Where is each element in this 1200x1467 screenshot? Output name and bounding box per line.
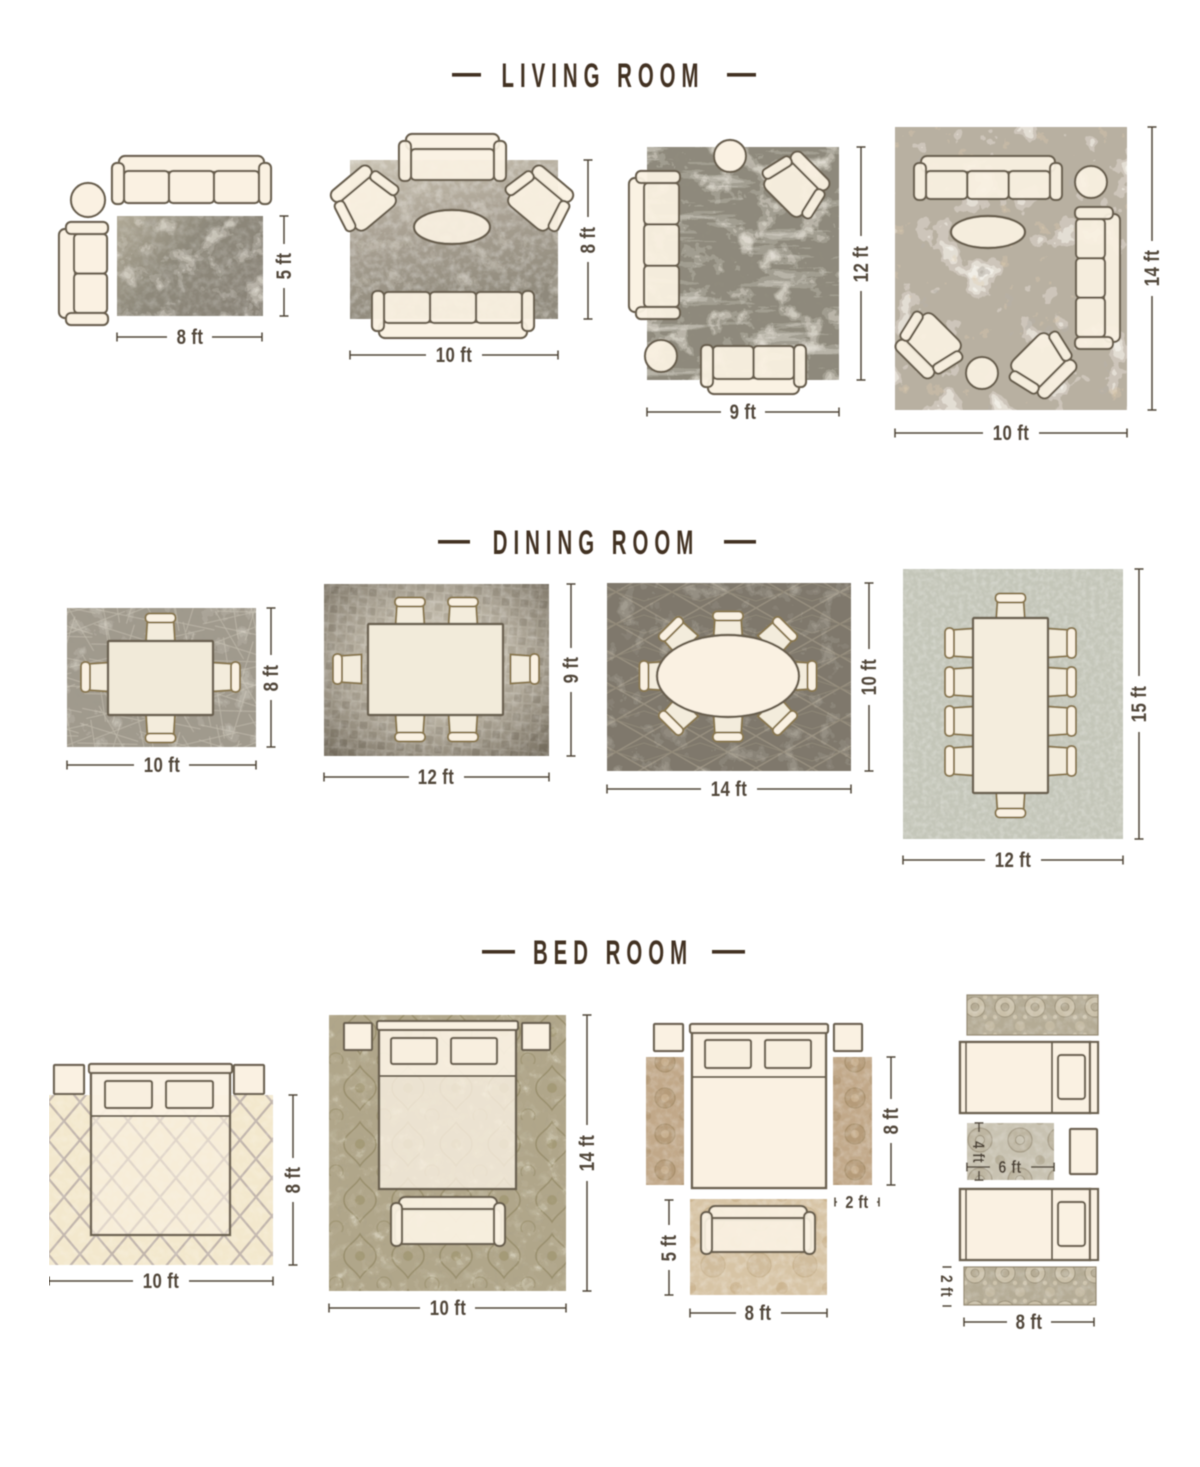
svg-text:12 ft: 12 ft [850, 246, 873, 283]
svg-text:6 ft: 6 ft [998, 1158, 1021, 1178]
svg-text:12 ft: 12 ft [418, 766, 455, 789]
svg-text:8 ft: 8 ft [260, 664, 283, 691]
svg-text:10 ft: 10 ft [143, 1270, 180, 1293]
svg-text:10 ft: 10 ft [858, 659, 881, 696]
svg-text:10 ft: 10 ft [144, 754, 181, 777]
svg-text:2 ft: 2 ft [937, 1275, 956, 1297]
svg-text:8 ft: 8 ft [1016, 1311, 1043, 1334]
svg-text:LIVING ROOM: LIVING ROOM [501, 57, 704, 95]
svg-text:12 ft: 12 ft [995, 849, 1032, 872]
svg-text:5 ft: 5 ft [658, 1234, 681, 1261]
svg-text:8 ft: 8 ft [177, 326, 204, 349]
svg-text:10 ft: 10 ft [436, 344, 473, 367]
svg-text:4 ft: 4 ft [969, 1141, 988, 1163]
svg-text:8 ft: 8 ft [880, 1107, 903, 1134]
svg-text:9 ft: 9 ft [560, 656, 583, 683]
svg-text:8 ft: 8 ft [282, 1166, 305, 1193]
svg-text:5 ft: 5 ft [273, 252, 296, 279]
svg-text:2 ft: 2 ft [845, 1193, 868, 1213]
svg-text:14 ft: 14 ft [1141, 250, 1164, 287]
svg-text:8 ft: 8 ft [745, 1302, 772, 1325]
svg-text:10 ft: 10 ft [430, 1297, 467, 1320]
svg-text:8 ft: 8 ft [577, 226, 600, 253]
svg-text:10 ft: 10 ft [993, 422, 1030, 445]
svg-text:DINING ROOM: DINING ROOM [493, 524, 699, 562]
svg-text:9 ft: 9 ft [730, 401, 757, 424]
svg-text:15 ft: 15 ft [1128, 686, 1151, 723]
svg-text:14 ft: 14 ft [711, 778, 748, 801]
svg-text:14 ft: 14 ft [576, 1135, 599, 1172]
svg-text:BED ROOM: BED ROOM [533, 934, 693, 972]
